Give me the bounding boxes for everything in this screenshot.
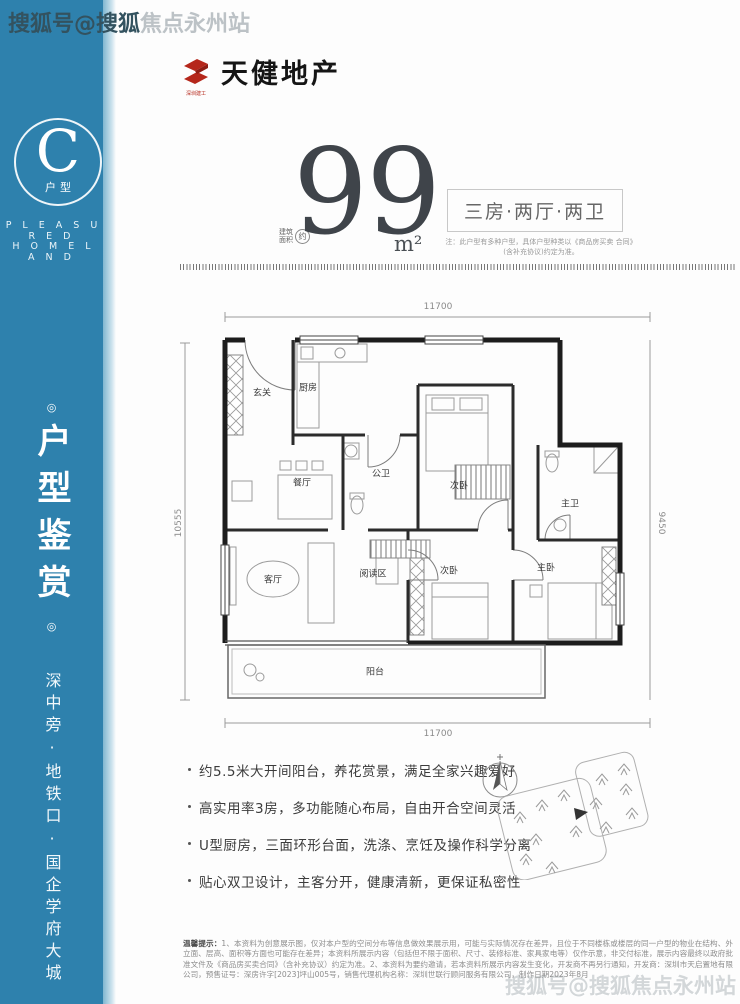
building-block-b	[573, 750, 650, 838]
room-label-master-bedroom: 主卧	[537, 561, 555, 574]
sidebar-slogan-block: 深中旁·地铁口·国企学府大城	[0, 672, 103, 986]
area-prefix-line2: 面积	[279, 236, 293, 244]
room-label-bedroom-2: 次卧	[450, 479, 468, 492]
disclaimer: 温馨提示：1、本资料为创意展示图，仅对本户型的空间分布等信息做效果展示用，可能与…	[183, 939, 733, 981]
site-plan-drawing	[478, 750, 658, 880]
layout-note: 注：此户型有多种户型，具体户型种类以《商品房买卖 合同》(含补充协议)约定为准。	[443, 237, 639, 257]
feature-item-2: 高实用率3房，多功能随心布局，自由开合空间灵活	[186, 797, 486, 817]
area-prefix-stack: 建筑 面积	[279, 228, 293, 244]
dimension-lines	[180, 312, 650, 728]
compass-icon	[483, 754, 517, 797]
room-label-dining: 餐厅	[293, 476, 311, 489]
area-prefix-line1: 建筑	[279, 228, 293, 236]
room-label-balcony: 阳台	[366, 665, 384, 678]
floorplan-drawing: 11700 11700 10555 9450	[170, 295, 670, 745]
developer-logo: 深圳建工 天健地产	[178, 57, 341, 97]
watermark-top-blue-part: 搜狐号@搜狐	[8, 12, 140, 37]
feature-item-3: U型厨房，三面环形台面，洗涤、烹饪及操作科学分离	[186, 834, 486, 854]
logo-text: 天健地产	[221, 57, 341, 93]
room-label-living: 客厅	[264, 573, 282, 586]
dim-top: 11700	[424, 302, 453, 312]
watermark-top-white-part: 焦点永州站	[140, 12, 250, 37]
room-label-kitchen: 厨房	[299, 381, 317, 394]
ornament-top-icon: ◎	[47, 402, 57, 413]
dim-bottom: 11700	[424, 729, 453, 739]
feature-item-1: 约5.5米大开间阳台，养花赏景，满足全家兴趣爱好	[186, 760, 486, 780]
sidebar-title-block: ◎ 户型鉴赏 ◎	[0, 398, 103, 636]
tianjian-s-icon	[179, 57, 213, 87]
logo-subtext: 深圳建工	[178, 92, 214, 97]
layout-title-box: 三房·两厅·两卫	[447, 189, 623, 232]
room-label-guest-bath: 公卫	[372, 467, 390, 480]
disclaimer-label: 温馨提示：	[183, 939, 221, 948]
feature-list: 约5.5米大开间阳台，养花赏景，满足全家兴趣爱好 高实用率3房，多功能随心布局，…	[186, 760, 486, 908]
area-unit: m²	[394, 232, 422, 256]
room-label-entry: 玄关	[253, 386, 271, 399]
feature-item-4: 贴心双卫设计，主客分开，健康清新，更保证私密性	[186, 871, 486, 891]
site-plan	[478, 750, 658, 880]
watermark-top: 搜狐号@搜狐焦点永州站	[8, 6, 250, 38]
disclaimer-line-4: 许字[2023]坪山005号，销售代理机构名称：深圳世联行顾问服务有限公司，制作…	[259, 970, 589, 979]
room-label-master-bath: 主卫	[561, 497, 579, 510]
floorplan: 11700 11700 10555 9450	[170, 295, 670, 745]
room-label-bedroom-3: 次卧	[440, 564, 458, 577]
room-label-reading-area: 阅读区	[359, 567, 386, 580]
dim-right: 9450	[656, 512, 666, 535]
floorplan-poster: C 户型 P L E A S U R E D H O M E L A N D ◎…	[0, 0, 740, 1004]
layout-note-line1: 注：此户型有多种户型，具体户型种类以《商品房买卖	[445, 238, 613, 246]
ornament-bottom-icon: ◎	[47, 621, 57, 632]
dim-left: 10555	[174, 509, 184, 538]
sidebar-torn-edge	[103, 0, 116, 1004]
vertical-slogan: 深中旁·地铁口·国企学府大城	[40, 672, 64, 986]
developer-logo-mark: 深圳建工	[178, 57, 214, 97]
unit-type-letter: C	[16, 122, 100, 180]
unit-type-badge: C 户型	[14, 118, 102, 206]
dotted-divider	[180, 264, 736, 270]
vertical-title: 户型鉴赏	[27, 423, 76, 611]
unit-type-label: 户型	[16, 179, 100, 195]
sidebar-subtitle-2: H O M E L A N D	[0, 241, 103, 263]
unit-footprints	[514, 764, 638, 873]
sidebar-subtitle-1: P L E A S U R E D	[0, 220, 103, 242]
